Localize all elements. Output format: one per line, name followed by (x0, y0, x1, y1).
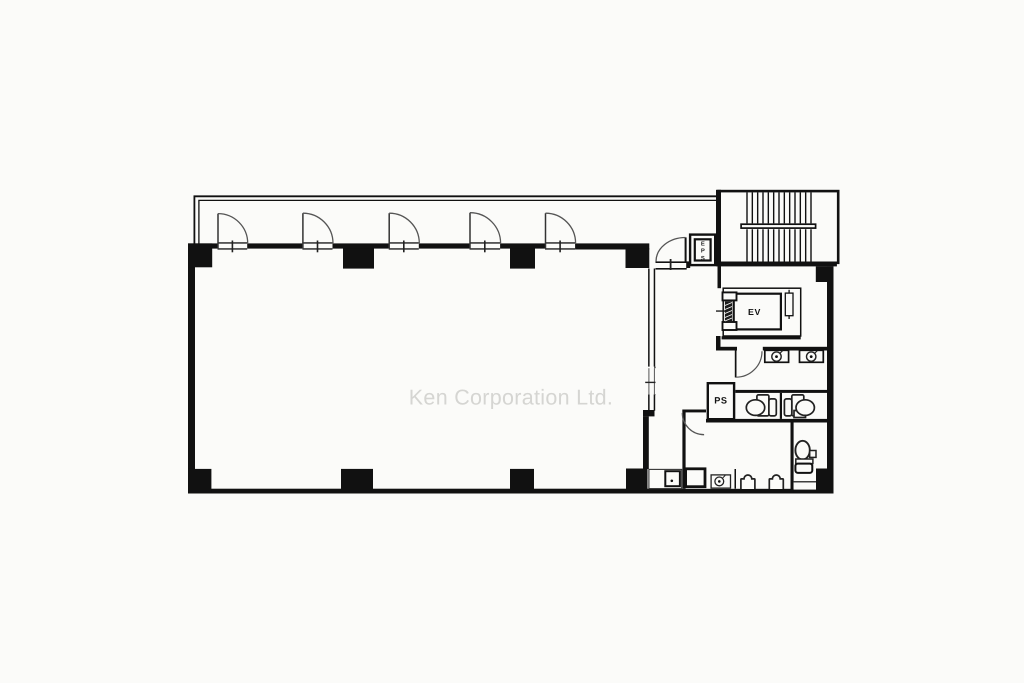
svg-text:EV: EV (748, 307, 761, 317)
svg-text:Ken Corporation Ltd.: Ken Corporation Ltd. (409, 386, 613, 410)
svg-text:S: S (701, 255, 705, 262)
svg-text:PS: PS (714, 396, 727, 406)
svg-text:P: P (701, 248, 705, 255)
svg-text:E: E (701, 240, 705, 247)
